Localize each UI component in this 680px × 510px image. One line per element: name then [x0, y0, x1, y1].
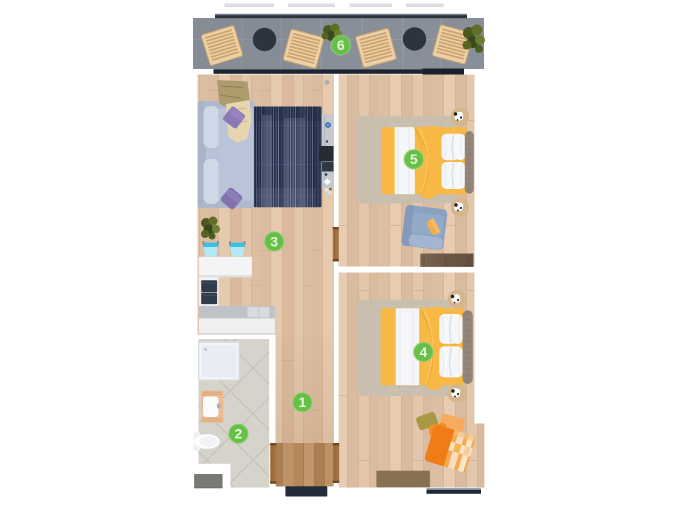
svg-text:1: 1: [299, 394, 307, 410]
svg-text:3: 3: [270, 233, 278, 249]
svg-text:6: 6: [337, 37, 345, 53]
svg-text:2: 2: [235, 426, 243, 442]
svg-text:4: 4: [420, 344, 428, 360]
svg-text:5: 5: [410, 151, 418, 167]
